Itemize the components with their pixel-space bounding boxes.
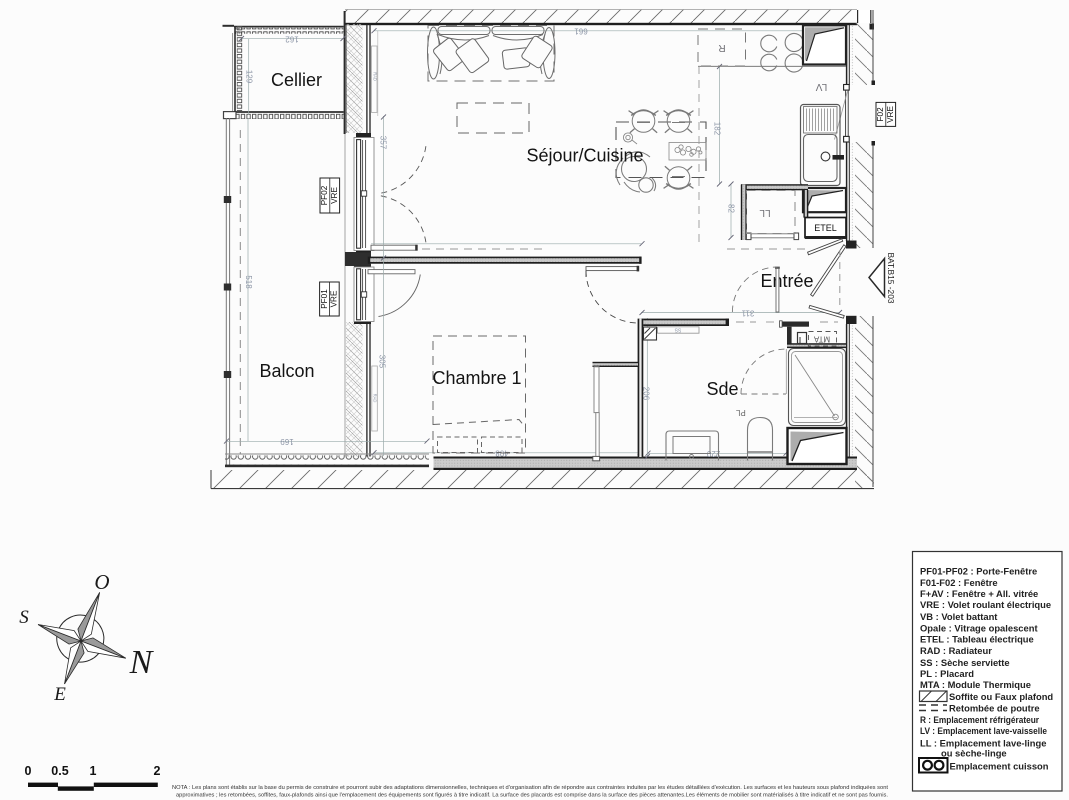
svg-text:661: 661 xyxy=(574,27,588,36)
svg-text:RAD: RAD xyxy=(373,394,378,403)
svg-text:F02: F02 xyxy=(876,107,885,122)
svg-text:VB : Volet battant: VB : Volet battant xyxy=(920,611,997,622)
svg-text:0: 0 xyxy=(25,764,32,778)
svg-text:Séjour/Cuisine: Séjour/Cuisine xyxy=(526,146,643,166)
svg-text:518: 518 xyxy=(244,275,253,289)
svg-text:Opale : Vitrage opalescent: Opale : Vitrage opalescent xyxy=(920,622,1038,633)
svg-text:VRE: VRE xyxy=(886,105,895,122)
svg-text:Retombée de poutre: Retombée de poutre xyxy=(949,703,1040,714)
svg-text:N: N xyxy=(129,644,155,681)
svg-text:PF01-PF02 : Porte-Fenêtre: PF01-PF02 : Porte-Fenêtre xyxy=(920,566,1037,577)
svg-text:S: S xyxy=(19,607,29,628)
svg-text:SS: SS xyxy=(674,327,681,333)
svg-text:MTA : Module Thermique: MTA : Module Thermique xyxy=(920,679,1031,690)
svg-text:Emplacement cuisson: Emplacement cuisson xyxy=(950,761,1049,772)
svg-text:182: 182 xyxy=(712,122,721,136)
svg-text:PL: PL xyxy=(735,408,745,417)
svg-text:O: O xyxy=(94,570,109,594)
svg-text:82: 82 xyxy=(726,204,735,213)
svg-text:305: 305 xyxy=(378,355,387,369)
svg-text:2: 2 xyxy=(154,764,161,778)
svg-text:PF01: PF01 xyxy=(320,289,329,309)
svg-text:VRE : Volet roulant électrique: VRE : Volet roulant électrique xyxy=(920,599,1051,610)
svg-text:VRE: VRE xyxy=(329,290,338,307)
svg-text:LV : Emplacement lave-vaissell: LV : Emplacement lave-vaisselle xyxy=(920,725,1047,736)
svg-text:ETEL: ETEL xyxy=(814,223,837,233)
svg-text:Cellier: Cellier xyxy=(271,70,322,90)
svg-text:RAD: RAD xyxy=(372,72,377,81)
svg-text:PF02: PF02 xyxy=(320,185,329,205)
svg-text:F01-F02 : Fenêtre: F01-F02 : Fenêtre xyxy=(920,577,998,588)
svg-text:ou sèche-linge: ou sèche-linge xyxy=(941,748,1007,759)
svg-text:Entrée: Entrée xyxy=(760,271,813,291)
svg-text:R : Emplacement réfrigérateur: R : Emplacement réfrigérateur xyxy=(920,714,1039,725)
svg-text:PL : Placard: PL : Placard xyxy=(920,668,974,679)
svg-text:approximatives ; les retombées: approximatives ; les retombées, soffites… xyxy=(176,793,888,799)
svg-text:Sde: Sde xyxy=(706,379,738,399)
svg-text:F+AV : Fenêtre + All. vitrée: F+AV : Fenêtre + All. vitrée xyxy=(920,588,1038,599)
svg-text:SS : Sèche serviette: SS : Sèche serviette xyxy=(920,657,1010,668)
svg-text:129: 129 xyxy=(245,70,254,84)
svg-text:169: 169 xyxy=(280,437,294,446)
svg-text:Soffite ou Faux plafond: Soffite ou Faux plafond xyxy=(949,691,1053,702)
svg-text:ETEL : Tableau électrique: ETEL : Tableau électrique xyxy=(920,634,1034,645)
svg-text:311: 311 xyxy=(741,308,754,317)
svg-text:E: E xyxy=(53,684,66,705)
svg-text:VRE: VRE xyxy=(330,187,339,204)
svg-text:LL: LL xyxy=(759,207,771,218)
svg-text:0.5: 0.5 xyxy=(51,764,68,778)
svg-text:MTA: MTA xyxy=(813,335,830,344)
svg-text:BAT.B15 -203: BAT.B15 -203 xyxy=(886,252,896,303)
svg-text:Chambre 1: Chambre 1 xyxy=(432,368,521,388)
svg-text:1: 1 xyxy=(90,764,97,778)
svg-text:RAD : Radiateur: RAD : Radiateur xyxy=(920,645,992,656)
svg-text:357: 357 xyxy=(379,136,388,150)
svg-text:NOTA : Les plans sont établis: NOTA : Les plans sont établis sur la bas… xyxy=(172,785,889,791)
svg-text:LV: LV xyxy=(815,81,827,92)
svg-text:162: 162 xyxy=(285,35,299,44)
svg-text:Balcon: Balcon xyxy=(259,361,314,381)
svg-text:R: R xyxy=(718,42,725,53)
